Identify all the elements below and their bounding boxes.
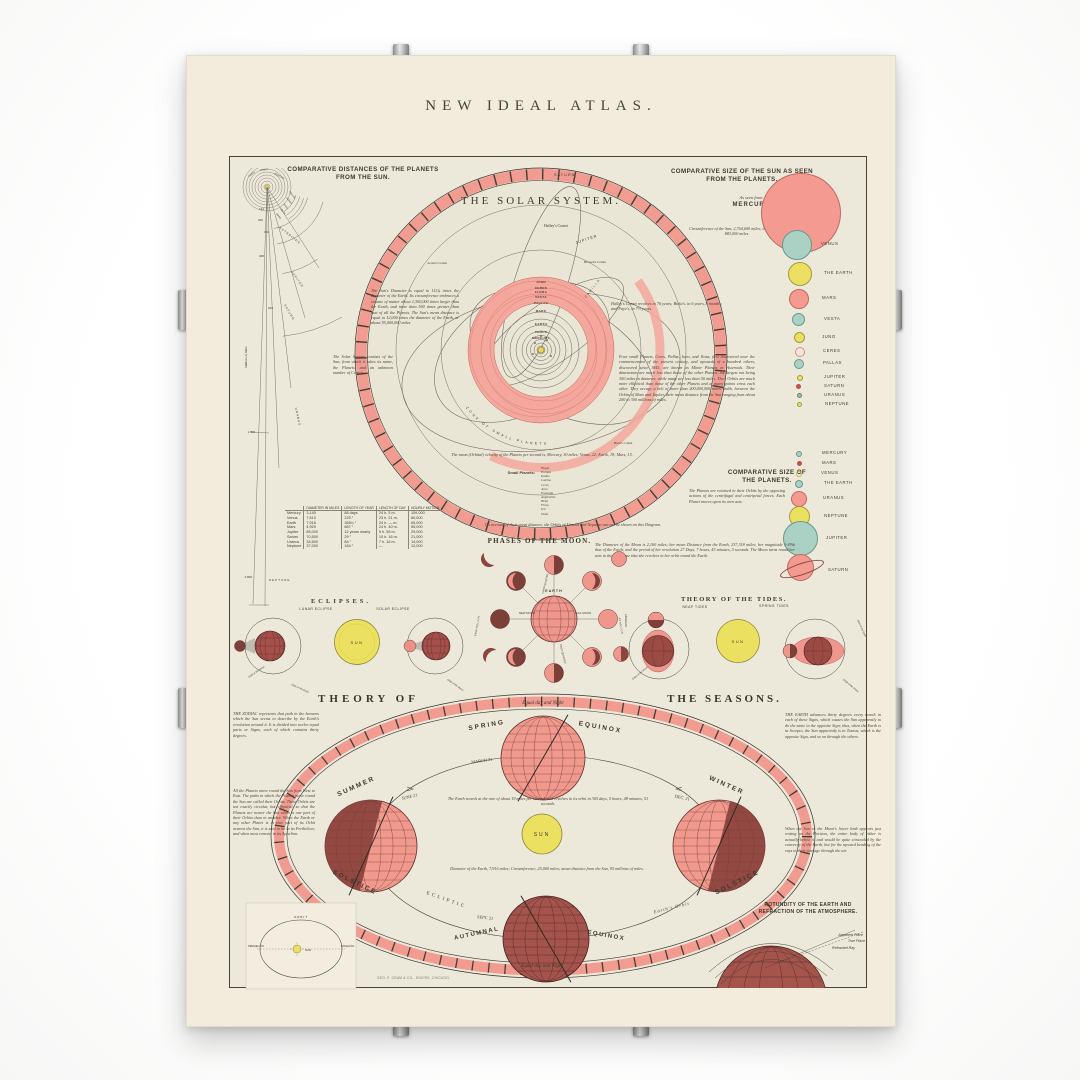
- ring-label-venus: VENUS: [535, 330, 547, 334]
- fan-mercury-label: MERCURY: [274, 173, 286, 180]
- lunar-eclipse-label: LUNAR ECLIPSE: [299, 607, 332, 611]
- eclipsing-moon: [404, 640, 416, 652]
- sun-size-mars-label: MARS: [822, 296, 836, 301]
- planet-size-venus-dot: [796, 471, 802, 477]
- winter-label: WINTER: [708, 775, 745, 797]
- summer-solstice-globe: [315, 790, 417, 895]
- orbit-of-earth-label: Orbit of the Earth: [856, 619, 867, 638]
- sun-diameter-note: The Sun's Diameter is equal to 111¾ time…: [371, 288, 459, 326]
- earth-diameter-note: Diameter of the Earth, 7,916 miles; Circ…: [422, 866, 672, 871]
- aphelion-label: APHELION: [341, 944, 354, 948]
- planet-data-table: DIAMETER IN MILES LENGTH OF YEAR LENGTH …: [285, 506, 441, 549]
- orbit-of-moon-label: Orbit of the Moon: [632, 666, 649, 681]
- rotundity-earth-globe: [715, 946, 827, 988]
- eclipses-sun-label: SUN: [351, 640, 364, 645]
- apparent-place-label: Apparent Place: [837, 933, 863, 937]
- fan-tick-200: 200: [258, 218, 263, 222]
- orbit-box-sun-label: SUN: [305, 948, 311, 952]
- planet-size-jupiter-label: JUPITER: [826, 536, 847, 541]
- sun-disc-from-venus: [782, 230, 812, 260]
- equal-day-night-top: Equal day and Night: [521, 701, 564, 706]
- uranus-neptune-note: On account of their great distance, the …: [483, 522, 663, 527]
- sun-disc-from-mars: [789, 289, 809, 309]
- sun-size-vesta-label: VESTA: [824, 317, 840, 322]
- fan-tick-310: 310: [264, 230, 269, 234]
- fan-tick-910: 910: [268, 306, 273, 310]
- planet-size-venus-label: VENUS: [821, 471, 838, 476]
- sun-disc-from-juno: [794, 332, 805, 343]
- fan-tick-495: 495: [259, 254, 264, 258]
- sun-size-jupiter-label: JUPITER: [824, 375, 845, 380]
- fan-vesta-label: VESTA: [279, 208, 286, 216]
- spring-tide-moon: [783, 644, 797, 658]
- ring-label-mars: MARS: [536, 309, 546, 313]
- fan-neptune-label: NEPTUNE: [269, 578, 290, 582]
- table-header: LENGTH OF DAY: [376, 506, 408, 511]
- ring-label-flora: FLORA: [535, 290, 548, 294]
- moon-phases-diagram: EARTH NEW MOON FULL MOON FIRST QUARTER: [467, 534, 633, 702]
- planet-size-mercury-label: MERCURY: [822, 451, 847, 456]
- page-title: NEW IDEAL ATLAS.: [187, 98, 895, 115]
- sun-size-earth-label: THE EARTH: [824, 271, 853, 276]
- eclipses-sun: SUN: [335, 620, 380, 665]
- sun-size-venus-label: VENUS: [821, 242, 838, 247]
- solar-saturn-label: SATURN: [554, 173, 575, 177]
- orbit-perihelion-aphelion-diagram: ORBIT PERIHELION APHELION SUN: [245, 902, 357, 990]
- rotundity-diagram: Apparent Place True Place Refracted Ray: [705, 928, 869, 988]
- bielas-comet-label: Biela's Comet: [614, 441, 633, 445]
- sun-disc-from-vesta: [792, 313, 805, 326]
- seasons-sun: SUN: [522, 814, 562, 854]
- small-planet-name: Vesta: [541, 512, 591, 516]
- earths-orbit-label: Earth's Orbit: [652, 901, 690, 915]
- perihelion-label: PERIHELION: [248, 944, 264, 948]
- table-header: HOURLY MOTION: [408, 506, 441, 511]
- spring-tide-earth: [792, 637, 844, 665]
- planet-orbits-note: The Planets are retained in their Orbits…: [689, 488, 785, 504]
- autumnal-label: AUTUMNAL: [454, 926, 500, 941]
- planet-sizes-title-line2: THE PLANETS.: [687, 477, 847, 485]
- table-header: DIAMETER IN MILES: [304, 506, 342, 511]
- asteroids-note: Four small Planets, Ceres, Pallas, Juno,…: [619, 354, 755, 402]
- spring-label: SPRING: [468, 719, 506, 732]
- fan-scale-label: Millions of Miles: [244, 345, 248, 369]
- ring-label-pallas: PALLAS: [534, 301, 548, 305]
- fan-tick-1800: 1,800: [247, 430, 255, 434]
- tides-sun: SUN: [717, 620, 760, 663]
- fan-venus-label: VENUS: [260, 169, 269, 172]
- sun-size-neptune-label: NEPTUNE: [825, 402, 849, 407]
- earth-signs-note: THE EARTH advances thirty degrees every …: [785, 712, 881, 739]
- seasons-sun-label: SUN: [534, 832, 551, 838]
- orbit-label: ORBIT: [294, 915, 308, 919]
- neap-tide-moon: [648, 612, 664, 628]
- equal-day-night-bottom: Equal day and Night: [520, 964, 563, 969]
- spring-tides-label: SPRING TIDES: [759, 604, 789, 608]
- orbital-velocity-note: The mean (Orbital) velocity of the Plane…: [427, 452, 657, 457]
- fan-tick-142: 142: [259, 207, 264, 211]
- aphelion-label: APHELION: [624, 614, 628, 627]
- brorsens-comet-label: Brorsen's Comet: [584, 260, 606, 264]
- sun-center-dot: [538, 347, 544, 353]
- sun-disc-from-earth: [788, 262, 812, 286]
- summer-label: SUMMER: [336, 775, 376, 798]
- sun-disc-from-saturn: [796, 384, 801, 389]
- product-photo-stage: NEW IDEAL ATLAS. COMPARATIVE DISTANCES O…: [0, 0, 1080, 1080]
- ecliptic-label: ECLIPTIC: [426, 891, 467, 910]
- eclipses-title: ECLIPSES.: [311, 598, 371, 605]
- fan-jupiter-label: JUPITER: [290, 270, 304, 288]
- fan-uranus-label: URANUS: [294, 407, 302, 426]
- ring-label-vesta: VESTA: [535, 295, 547, 299]
- sun-size-pallas-label: PALLAS: [823, 361, 842, 366]
- small-planets-label: Small Planets:: [491, 470, 535, 475]
- orbit-of-moon-label: Orbit of the Moon: [248, 665, 266, 679]
- arrests-comet-label: Arrest's Comet: [427, 261, 447, 265]
- sun-disc-from-jupiter: [797, 375, 803, 381]
- autumnal-equinox-globe: [503, 896, 589, 983]
- autumnal-equinox-label: EQUINOX: [587, 930, 626, 943]
- sun-disc-from-ceres: [795, 347, 805, 357]
- earth-travel-note: The Earth travels at the rate of about 1…: [443, 796, 653, 807]
- solar-eclipse-earth: [422, 632, 450, 660]
- sept-21-label: SEPT. 21: [477, 914, 494, 921]
- planet-size-earth-dot: [795, 480, 803, 488]
- table-header: LENGTH OF YEAR: [342, 506, 377, 511]
- sun-disc-from-neptune: [797, 402, 802, 407]
- planet-size-earth-label: THE EARTH: [824, 481, 853, 486]
- zodiac-note: THE ZODIAC represents that path in the h…: [233, 711, 319, 738]
- sun-disc-from-uranus: [797, 393, 802, 398]
- fan-saturn-label: SATURN: [283, 304, 296, 322]
- rotundity-title-line1: ROTUNDITY OF THE EARTH AND: [739, 902, 877, 909]
- planet-size-uranus-label: URANUS: [823, 496, 844, 501]
- sun-size-uranus-label: URANUS: [824, 393, 845, 398]
- planet-size-mercury-dot: [796, 451, 802, 457]
- ring-label-mercury: MERCURY: [532, 336, 550, 340]
- new-moon-label: NEW MOON: [519, 611, 535, 615]
- spring-equinox-globe: [501, 715, 585, 802]
- sun-size-saturn-label: SATURN: [824, 384, 844, 389]
- rotundity-title-line2: REFRACTION OF THE ATMOSPHERE.: [739, 909, 877, 916]
- eclipsed-moon: [235, 641, 246, 652]
- tides-title: THEORY OF THE TIDES.: [681, 596, 787, 603]
- fan-tick-2800: 2,800: [244, 575, 252, 579]
- solar-eclipse-label: SOLAR ECLIPSE: [376, 607, 409, 611]
- neap-tides-label: NEAP TIDES: [682, 605, 707, 609]
- march-21-label: MARCH 21: [471, 757, 493, 765]
- planet-size-neptune-label: NEPTUNE: [824, 514, 848, 519]
- publisher-imprint: GEO. F. CRAM & CO., ENG'RS, CHICAGO.: [377, 976, 450, 980]
- earth-label: EARTH: [545, 589, 562, 593]
- first-quarter-label: FIRST QUARTER: [559, 644, 567, 664]
- tides-sun-label: SUN: [732, 639, 745, 644]
- ring-label-juno: JUNO: [536, 280, 546, 284]
- june-21-label: JUNE 21: [401, 792, 418, 801]
- sun-size-juno-label: JUNO: [822, 335, 836, 340]
- true-place-label: True Place: [848, 939, 865, 943]
- planet-size-uranus-dot: [791, 491, 807, 507]
- planet-motion-note: All the Planets move round the Sun from …: [233, 788, 315, 836]
- atlas-poster: NEW IDEAL ATLAS. COMPARATIVE DISTANCES O…: [186, 55, 896, 1027]
- earth-globe: [531, 596, 577, 642]
- planet-size-mars-dot: [797, 461, 802, 466]
- spring-equinox-label: EQUINOX: [578, 720, 623, 735]
- dec-21-label: DEC. 21: [674, 794, 690, 802]
- table-row: Neptune37,000164 ″—12,000: [285, 544, 441, 549]
- fan-juno-label: JUNO: [282, 203, 288, 209]
- comet-periods-note: Halley's Comet revolves in 76 years; Bie…: [611, 301, 723, 312]
- sun-size-ceres-label: CERES: [823, 349, 840, 354]
- refracted-ray-label: Refracted Ray: [832, 946, 855, 950]
- neap-tide-earth: [642, 630, 674, 672]
- lunar-eclipse-earth: [255, 631, 285, 661]
- orbit-of-moon-label: Orbit of the Moon: [842, 678, 859, 693]
- sun-disc-from-pallas: [794, 359, 804, 369]
- full-moon-label: FULL MOON: [575, 611, 591, 615]
- planet-size-saturn-label: SATURN: [828, 568, 848, 573]
- ring-label-earth: EARTH: [535, 322, 547, 326]
- halleys-comet-label: Halley's Comet: [544, 224, 569, 228]
- solar-system-note: The Solar System consists of the Sun, fr…: [333, 354, 393, 376]
- refraction-note: When the Sun or the Moon's lower limb ap…: [785, 826, 881, 853]
- planet-size-mars-label: MARS: [822, 461, 836, 466]
